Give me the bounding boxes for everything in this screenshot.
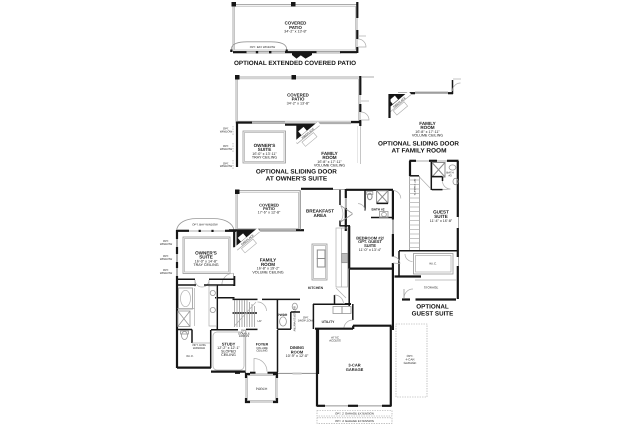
svg-text:WINDOW: WINDOW — [220, 129, 233, 133]
svg-text:STORAGE: STORAGE — [424, 286, 439, 290]
svg-text:17'-5" x 12'-8": 17'-5" x 12'-8" — [258, 211, 281, 215]
svg-text:WINDOW: WINDOW — [220, 164, 233, 168]
svg-text:CEILING: CEILING — [221, 353, 236, 357]
svg-text:BUTLER'S PANTRY: BUTLER'S PANTRY — [293, 306, 297, 331]
svg-text:CEILING: CEILING — [256, 349, 267, 353]
svg-text:GARAGE: GARAGE — [346, 367, 364, 372]
svg-text:AREA: AREA — [313, 213, 327, 218]
svg-text:34'-2" x 13'-8": 34'-2" x 13'-8" — [287, 101, 310, 105]
svg-text:WINDOW: WINDOW — [160, 257, 173, 261]
svg-text:WINDOW: WINDOW — [160, 242, 173, 246]
svg-text:GUEST SUITE: GUEST SUITE — [412, 310, 454, 317]
svg-text:OPT. CABINETS: OPT. CABINETS — [413, 179, 416, 196]
svg-text:W.I.C.: W.I.C. — [429, 262, 437, 266]
svg-text:#3: #3 — [448, 173, 452, 177]
svg-text:PORCH: PORCH — [256, 387, 268, 391]
svg-text:TRAY CEILING: TRAY CEILING — [193, 263, 218, 267]
svg-text:PWDR: PWDR — [278, 313, 288, 317]
svg-text:11'-0" x 13'-4": 11'-0" x 13'-4" — [359, 248, 382, 252]
svg-text:AT FAMILY ROOM: AT FAMILY ROOM — [392, 147, 447, 154]
svg-text:WINDOW: WINDOW — [220, 147, 233, 151]
svg-text:AT OWNER'S SUITE: AT OWNER'S SUITE — [266, 175, 328, 182]
svg-text:OPT. 2' GARAGE EXTENSION: OPT. 2' GARAGE EXTENSION — [335, 412, 374, 416]
svg-text:DROP ZONE: DROP ZONE — [298, 318, 315, 322]
svg-text:VOLUME CEILING: VOLUME CEILING — [314, 164, 345, 168]
svg-text:WINDOW: WINDOW — [160, 271, 173, 275]
svg-text:OPTIONAL SLIDING DOOR: OPTIONAL SLIDING DOOR — [256, 168, 338, 175]
svg-text:VOLUME CEILING: VOLUME CEILING — [252, 270, 283, 274]
svg-text:UTILITY: UTILITY — [322, 320, 336, 324]
svg-text:OPT. 4' GARAGE EXTENSION: OPT. 4' GARAGE EXTENSION — [335, 419, 374, 423]
svg-text:OPTIONAL EXTENDED COVERED PATI: OPTIONAL EXTENDED COVERED PATIO — [234, 60, 356, 67]
svg-text:11'-4" x 16'-8": 11'-4" x 16'-8" — [430, 219, 453, 223]
svg-text:WASHER: WASHER — [193, 346, 205, 350]
svg-text:BATH #2: BATH #2 — [371, 207, 384, 211]
svg-text:10'-9" x 12'-0": 10'-9" x 12'-0" — [286, 354, 309, 358]
svg-text:VOLUME CEILING: VOLUME CEILING — [412, 134, 443, 138]
svg-text:OPT. BAY WINDOW: OPT. BAY WINDOW — [192, 222, 218, 226]
svg-text:GARAGE: GARAGE — [404, 361, 417, 365]
svg-text:TRAY CEILING: TRAY CEILING — [252, 156, 277, 160]
svg-text:W.I.C.: W.I.C. — [186, 354, 194, 358]
svg-text:DOORS: DOORS — [239, 334, 249, 338]
svg-text:34'-2" x 13'-8": 34'-2" x 13'-8" — [284, 29, 307, 33]
svg-text:ACCESS: ACCESS — [329, 338, 341, 342]
svg-text:UP: UP — [258, 319, 262, 323]
svg-text:KITCHEN: KITCHEN — [308, 286, 324, 290]
svg-text:OPT. BAY WINDOW: OPT. BAY WINDOW — [250, 45, 276, 49]
